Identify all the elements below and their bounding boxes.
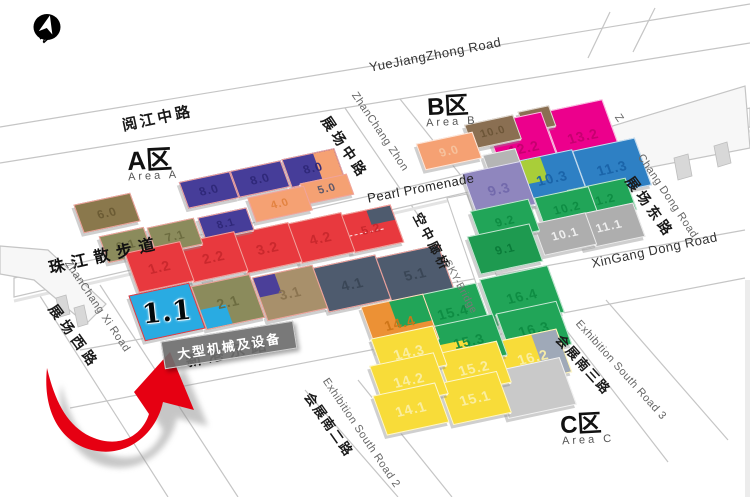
hall-number-label: 14.1 bbox=[393, 398, 429, 420]
hall-number-label: 2.1 bbox=[214, 292, 242, 312]
hall-number-label: 9.1 bbox=[493, 240, 517, 257]
hall-number-label: 11.3 bbox=[594, 157, 629, 179]
hall-number-label: 9.3 bbox=[485, 179, 513, 199]
hall-number-label: 2.2 bbox=[200, 247, 228, 267]
hall-number-label: 11.1 bbox=[594, 217, 625, 236]
hall-number-label: 4.2 bbox=[307, 228, 335, 248]
hall-number-label: 1.2 bbox=[146, 257, 174, 277]
hall-subzone bbox=[253, 274, 281, 298]
hall-number-label: 10.0 bbox=[478, 124, 507, 141]
hall-number-label: 3.2 bbox=[254, 238, 282, 258]
hall-number-label: 8.0 bbox=[197, 181, 221, 198]
hall-number-label: 4.1 bbox=[338, 274, 366, 294]
hall-number-label: 5.2 bbox=[359, 220, 383, 237]
hall-number-label: 8.1 bbox=[215, 216, 237, 231]
hall-number-label: 10.1 bbox=[549, 225, 581, 244]
hall-number-label: 4.0 bbox=[269, 196, 291, 211]
hall-number-label: 1.1 bbox=[141, 294, 194, 330]
hall-number-label: 6.0 bbox=[95, 204, 119, 221]
hall-number-label: 8.0 bbox=[248, 170, 272, 187]
exhibition-map: 6.08.08.08.04.05.06.17.18.11.22.23.24.25… bbox=[0, 0, 750, 497]
hall-number-label: 5.0 bbox=[316, 181, 338, 196]
hall-number-label: 5.1 bbox=[401, 264, 429, 284]
compass-icon bbox=[28, 8, 76, 54]
hall-number-label: 3.1 bbox=[276, 283, 304, 303]
hall-number-label: 9.0 bbox=[437, 142, 461, 159]
hall-number-label: 13.2 bbox=[565, 125, 601, 147]
hall-number-label: 16.4 bbox=[504, 285, 540, 307]
hall-number-label: 15.1 bbox=[457, 387, 493, 409]
page-edge-strip bbox=[745, 280, 750, 497]
